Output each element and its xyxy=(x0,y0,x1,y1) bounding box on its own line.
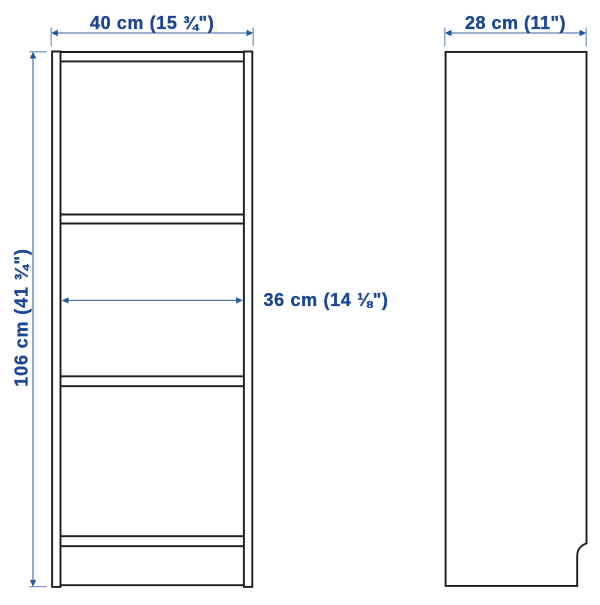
svg-text:106 cm (41 ¾"): 106 cm (41 ¾") xyxy=(12,248,32,387)
svg-text:36 cm (14 ⅛"): 36 cm (14 ⅛") xyxy=(264,290,389,310)
svg-text:28 cm (11"): 28 cm (11") xyxy=(465,13,566,33)
svg-text:40 cm (15 ¾"): 40 cm (15 ¾") xyxy=(90,13,214,33)
